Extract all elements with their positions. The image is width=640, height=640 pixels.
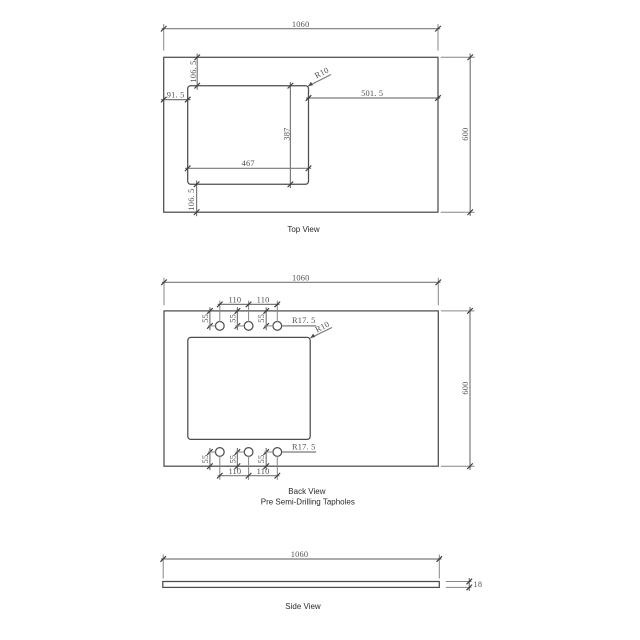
svg-text:55: 55 <box>257 314 266 323</box>
svg-text:106. 5: 106. 5 <box>189 60 198 82</box>
svg-text:600: 600 <box>461 381 470 394</box>
svg-text:Side View: Side View <box>285 602 321 611</box>
svg-text:55: 55 <box>257 455 266 464</box>
svg-text:91. 5: 91. 5 <box>167 90 185 99</box>
svg-text:110: 110 <box>228 467 241 476</box>
svg-text:600: 600 <box>461 128 470 141</box>
svg-text:55: 55 <box>228 455 237 464</box>
svg-text:1060: 1060 <box>291 550 309 559</box>
svg-text:R17. 5: R17. 5 <box>292 443 316 452</box>
svg-text:18: 18 <box>474 580 483 589</box>
svg-text:R17. 5: R17. 5 <box>292 316 316 325</box>
svg-text:106. 5: 106. 5 <box>187 188 196 210</box>
svg-text:1060: 1060 <box>292 274 310 283</box>
svg-text:467: 467 <box>242 159 255 168</box>
svg-text:Back View: Back View <box>288 487 325 496</box>
svg-text:387: 387 <box>282 127 291 140</box>
svg-text:Top View: Top View <box>287 225 320 234</box>
svg-text:55: 55 <box>228 314 237 323</box>
svg-text:110: 110 <box>228 295 241 304</box>
svg-text:1060: 1060 <box>292 20 310 29</box>
svg-text:55: 55 <box>201 314 210 323</box>
svg-text:501. 5: 501. 5 <box>361 89 383 98</box>
svg-text:55: 55 <box>201 455 210 464</box>
svg-text:R10: R10 <box>313 66 330 81</box>
svg-text:110: 110 <box>257 467 270 476</box>
svg-text:110: 110 <box>257 295 270 304</box>
svg-text:Pre Semi-Drilling Tapholes: Pre Semi-Drilling Tapholes <box>261 497 355 506</box>
